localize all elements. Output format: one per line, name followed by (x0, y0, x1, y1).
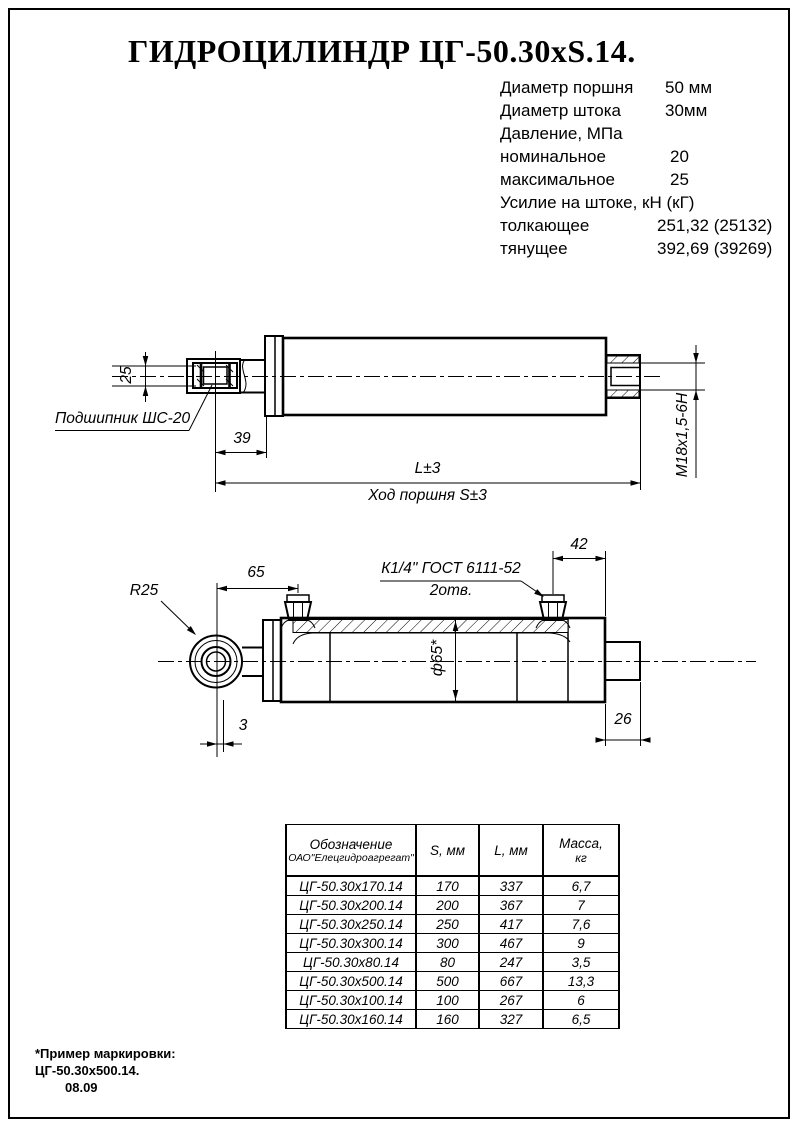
cell-length: 367 (479, 896, 543, 915)
cell-length: 267 (479, 991, 543, 1010)
table-row: ЦГ-50.30х170.141703376,7 (286, 876, 619, 896)
size-table: Обозначение ОАО"Елецгидроагрегат" S, мм … (285, 824, 620, 1029)
cell-stroke: 80 (416, 953, 479, 972)
dim-bearing-width-label: 25 (118, 355, 136, 395)
drawing-sheet: ГИДРОЦИЛИНДР ЦГ-50.30хS.14. Диаметр порш… (0, 0, 798, 1127)
piston-stroke-note: Ход поршня S±3 (300, 487, 555, 505)
header-mass: Масса, кг (543, 825, 619, 877)
header-designation: Обозначение ОАО"Елецгидроагрегат" (286, 825, 416, 877)
thread-spec-label: М18х1,5-6Н (674, 385, 692, 485)
cell-mass: 3,5 (543, 953, 619, 972)
cell-stroke: 500 (416, 972, 479, 991)
table-row: ЦГ-50.30х250.142504177,6 (286, 915, 619, 934)
cell-stroke: 170 (416, 876, 479, 896)
cell-stroke: 200 (416, 896, 479, 915)
footnote-line2: ЦГ-50.30х500.14. (35, 1062, 176, 1079)
dim-rear-boss-label: 26 (606, 711, 640, 729)
cell-length: 417 (479, 915, 543, 934)
cell-designation: ЦГ-50.30х80.14 (286, 953, 416, 972)
cell-designation: ЦГ-50.30х160.14 (286, 1010, 416, 1029)
cell-designation: ЦГ-50.30х250.14 (286, 915, 416, 934)
port-count-label: 2отв. (420, 582, 482, 600)
cell-mass: 13,3 (543, 972, 619, 991)
eye-radius-label: R25 (123, 582, 165, 600)
cell-designation: ЦГ-50.30х100.14 (286, 991, 416, 1010)
cell-stroke: 250 (416, 915, 479, 934)
header-mass-line1: Масса, (544, 836, 618, 851)
header-designation-line1: Обозначение (287, 837, 415, 852)
cell-mass: 6,7 (543, 876, 619, 896)
cell-length: 667 (479, 972, 543, 991)
header-designation-line2: ОАО"Елецгидроагрегат" (287, 852, 415, 864)
footnote-line3: 08.09 (65, 1079, 176, 1096)
cell-length: 337 (479, 876, 543, 896)
dim-length-label: L±3 (320, 460, 535, 478)
header-mass-line2: кг (544, 851, 618, 865)
cell-stroke: 100 (416, 991, 479, 1010)
cell-stroke: 300 (416, 934, 479, 953)
marking-footnote: *Пример маркировки: ЦГ-50.30х500.14. 08.… (35, 1045, 176, 1096)
dim-port-end-label: 42 (558, 536, 600, 554)
cell-mass: 6,5 (543, 1010, 619, 1029)
header-stroke: S, мм (416, 825, 479, 877)
table-row: ЦГ-50.30х200.142003677 (286, 896, 619, 915)
cell-mass: 9 (543, 934, 619, 953)
cell-stroke: 160 (416, 1010, 479, 1029)
bearing-callout-label: Подшипник ШС-20 (55, 410, 189, 428)
dim-rod-end-label: 39 (220, 430, 264, 448)
cell-designation: ЦГ-50.30х200.14 (286, 896, 416, 915)
table-row: ЦГ-50.30х160.141603276,5 (286, 1010, 619, 1029)
table-row: ЦГ-50.30х100.141002676 (286, 991, 619, 1010)
table-row: ЦГ-50.30х300.143004679 (286, 934, 619, 953)
bore-diameter-label: ф65* (429, 628, 447, 688)
header-length: L, мм (479, 825, 543, 877)
table-row: ЦГ-50.30х80.14802473,5 (286, 953, 619, 972)
cell-length: 247 (479, 953, 543, 972)
cell-length: 327 (479, 1010, 543, 1029)
dim-eye-offset-label: 3 (232, 717, 254, 735)
table-header-row: Обозначение ОАО"Елецгидроагрегат" S, мм … (286, 825, 619, 877)
table-row: ЦГ-50.30х500.1450066713,3 (286, 972, 619, 991)
footnote-line1: *Пример маркировки: (35, 1045, 176, 1062)
dim-port-offset-label: 65 (236, 564, 276, 582)
port-thread-spec-label: К1/4" ГОСТ 6111-52 (376, 560, 526, 578)
cell-mass: 7 (543, 896, 619, 915)
cell-mass: 7,6 (543, 915, 619, 934)
cell-mass: 6 (543, 991, 619, 1010)
cell-designation: ЦГ-50.30х170.14 (286, 876, 416, 896)
cell-designation: ЦГ-50.30х500.14 (286, 972, 416, 991)
cell-designation: ЦГ-50.30х300.14 (286, 934, 416, 953)
cell-length: 467 (479, 934, 543, 953)
